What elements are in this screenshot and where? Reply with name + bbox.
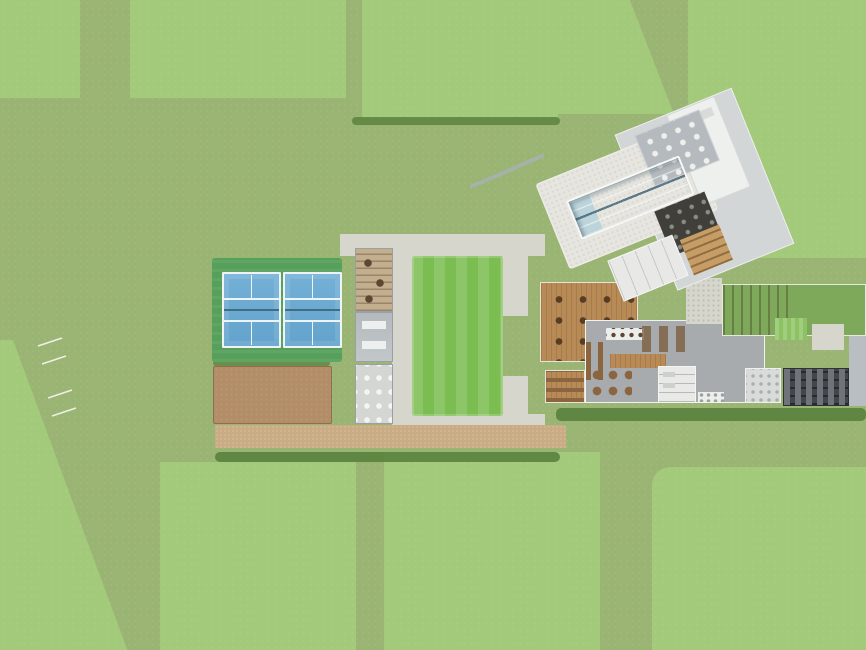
hedge-row: [215, 452, 560, 462]
rooftop-terrace: [812, 324, 844, 350]
lawn-block: [130, 0, 346, 98]
lawn-east-path: [502, 376, 528, 432]
lawn-bottom-path: [392, 414, 545, 434]
meadow-trail: [88, 148, 268, 426]
event-lawn: [412, 256, 503, 416]
parking-bay-line: [38, 338, 76, 416]
road-diagonal: [660, 0, 866, 300]
clubhouse-dining-deck: [540, 282, 638, 362]
lawn-east-path: [502, 256, 528, 316]
stone-path: [514, 142, 552, 242]
hedge-row: [213, 360, 330, 366]
dining-long-tables: [586, 342, 610, 380]
pool-deck: [535, 124, 718, 269]
pool-house-roof: [666, 96, 751, 206]
road-south: [636, 452, 866, 650]
clubhouse-kitchen: [658, 366, 696, 403]
lawn-block: [0, 0, 80, 98]
dry-creek: [472, 156, 542, 186]
servery-counter: [698, 392, 724, 402]
clubhouse-south-deck: [545, 370, 585, 403]
clubhouse-main-hall: [585, 320, 765, 403]
clubhouse-hedge: [556, 408, 866, 421]
sauna-room: [680, 224, 733, 275]
lawn-block: [688, 0, 866, 258]
lawn-block: [362, 0, 558, 118]
lawn-block: [0, 340, 130, 650]
clubhouse-bar: [606, 328, 644, 340]
road-layer: [0, 0, 866, 650]
meadow-trail-branch: [224, 290, 352, 302]
clubhouse-sidewalk: [556, 421, 866, 437]
pool-building-slab: [615, 88, 795, 291]
lawn-layer: [0, 0, 866, 650]
roof-lounge-terrace: [634, 109, 720, 186]
planting-layer: [0, 0, 866, 650]
skylight: [362, 321, 386, 329]
clubhouse-east-wing: [849, 336, 866, 406]
hedge-row: [352, 117, 560, 125]
lawn-top-path: [340, 234, 545, 256]
rooftop-turf: [775, 318, 807, 340]
lawn-block: [160, 462, 356, 650]
footpath-west: [78, 436, 214, 439]
amenity-layer: [0, 0, 866, 650]
amenity-rooms: [607, 235, 688, 302]
pickleball-court: [283, 272, 342, 348]
garden-promenade: [215, 425, 566, 448]
clubhouse-building: [540, 278, 866, 413]
sidewalk-diagonal-west: [630, 0, 694, 92]
lawn-block: [652, 467, 866, 650]
pickleball-courts: [212, 258, 342, 362]
gym-room: [654, 191, 722, 256]
bbq-terrace: [355, 364, 393, 424]
road-southwest: [28, 324, 146, 650]
ground-texture-layer: [0, 0, 866, 650]
theater-room: [783, 368, 849, 406]
road-diagonal-curb: [660, 0, 866, 300]
community-garden: [213, 366, 332, 424]
court-net-line: [224, 309, 279, 311]
clubhouse-courtyard: [686, 278, 722, 324]
pickleball-court: [222, 272, 281, 348]
court-net-line: [285, 309, 340, 311]
garden-pavilion-building: [355, 245, 393, 425]
pavilion-roof: [355, 312, 393, 362]
road-southwest-curb: [28, 324, 146, 650]
parking-apron: [50, 342, 97, 474]
changing-rooms: [745, 368, 781, 403]
skylight: [362, 341, 386, 349]
rooftop-garden: [722, 284, 866, 336]
dining-round-tables: [586, 364, 632, 400]
pool-building: [477, 48, 808, 368]
building-layer: [0, 0, 866, 650]
road-south-curb: [636, 452, 866, 650]
lawn-west-path: [392, 256, 414, 432]
lap-pool: [566, 155, 695, 240]
lawn-block: [384, 452, 600, 650]
aerial-site-plan: [0, 0, 866, 650]
clubhouse-inner-deck: [610, 354, 666, 368]
lounge-seating: [642, 326, 688, 352]
pergola-dining-terrace: [355, 248, 393, 312]
lawn-block: [558, 0, 674, 114]
sidewalk-diagonal-east: [695, 0, 858, 242]
